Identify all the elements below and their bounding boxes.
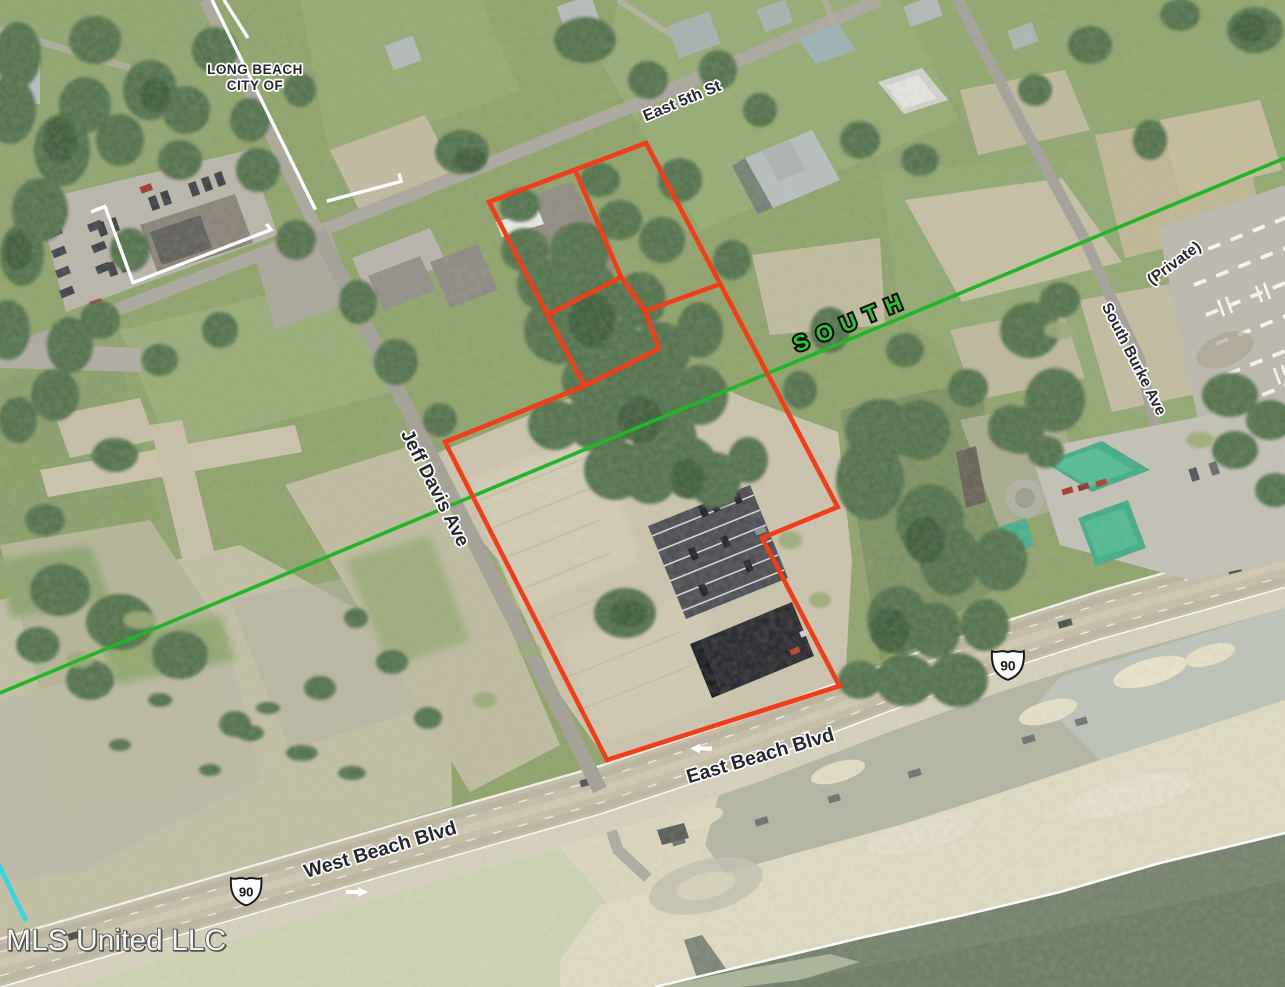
svg-text:90: 90 <box>1000 658 1016 673</box>
svg-text:LONG BEACH: LONG BEACH <box>207 62 303 77</box>
svg-text:MLS United LLC: MLS United LLC <box>6 924 226 957</box>
svg-text:CITY OF: CITY OF <box>227 78 284 93</box>
svg-text:90: 90 <box>239 884 254 899</box>
